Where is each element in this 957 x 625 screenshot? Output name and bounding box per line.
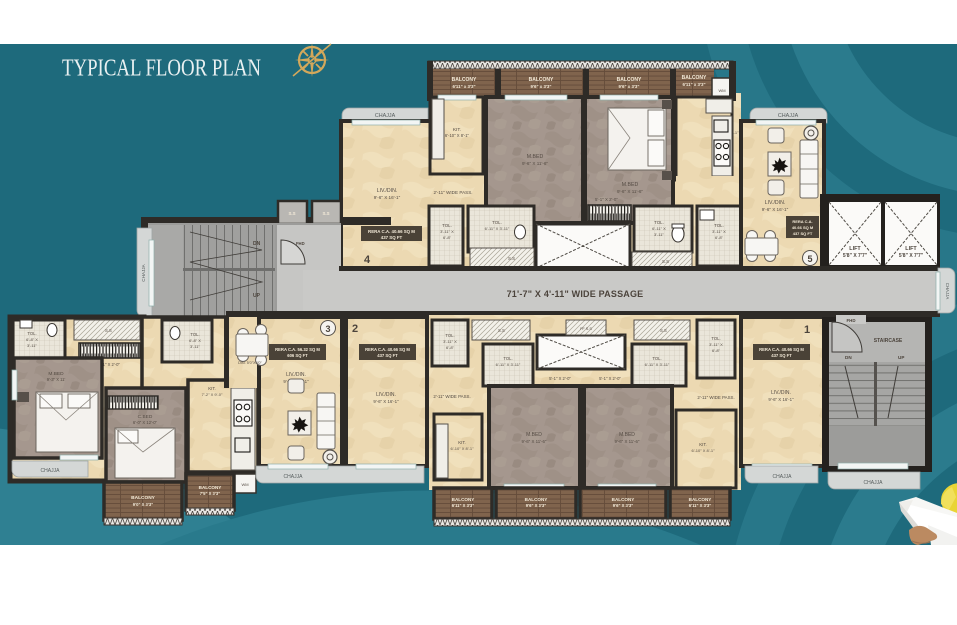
svg-text:6'11" X 3'3": 6'11" X 3'3" [689, 503, 712, 508]
svg-text:3'-11" X: 3'-11" X [712, 229, 726, 234]
svg-text:6'-11" X 3'-11": 6'-11" X 3'-11" [645, 362, 670, 367]
svg-text:CHAJJA: CHAJJA [945, 283, 950, 300]
svg-text:7'5" X 3'3": 7'5" X 3'3" [200, 491, 220, 496]
svg-text:RERA C.A. 40.66 SQ M: RERA C.A. 40.66 SQ M [368, 229, 415, 234]
svg-text:40.66 SQ M: 40.66 SQ M [792, 225, 814, 230]
svg-text:FHD: FHD [296, 241, 305, 246]
svg-text:BALCONY: BALCONY [525, 497, 548, 502]
svg-text:6'-11" X 3'-11": 6'-11" X 3'-11" [485, 226, 510, 231]
svg-text:TOL.: TOL. [442, 223, 452, 228]
svg-text:BALCONY: BALCONY [612, 497, 635, 502]
svg-text:RERA C.A.: RERA C.A. [792, 219, 812, 224]
svg-text:71'-7" X 4'-11" WIDE PASSAGE: 71'-7" X 4'-11" WIDE PASSAGE [507, 289, 644, 299]
svg-text:M.BED: M.BED [619, 432, 635, 438]
svg-text:BALCONY: BALCONY [682, 75, 707, 81]
svg-text:6'-8" X: 6'-8" X [26, 337, 38, 342]
svg-text:437 SQ FT: 437 SQ FT [381, 235, 403, 240]
svg-text:M.BED: M.BED [622, 182, 639, 188]
svg-text:5: 5 [807, 254, 812, 264]
svg-text:5'-1" X 2'-0": 5'-1" X 2'-0" [549, 376, 571, 381]
svg-text:LIFT: LIFT [905, 246, 917, 252]
svg-text:2: 2 [352, 323, 358, 335]
svg-text:BALCONY: BALCONY [452, 77, 477, 83]
svg-text:KIT.: KIT. [699, 442, 707, 447]
svg-text:LIV./DIN.: LIV./DIN. [286, 372, 306, 378]
svg-text:9'-6" X 11'-6": 9'-6" X 11'-6" [615, 439, 640, 444]
svg-text:RERA C.A. 40.66 SQ M: RERA C.A. 40.66 SQ M [365, 347, 410, 352]
svg-text:3'-11": 3'-11" [190, 344, 200, 349]
svg-text:1: 1 [804, 324, 810, 336]
svg-text:9'-3" X 11': 9'-3" X 11' [47, 377, 66, 382]
svg-text:9'0" X 3'3": 9'0" X 3'3" [133, 502, 153, 507]
svg-text:9'-6" X 16'-1": 9'-6" X 16'-1" [762, 207, 789, 212]
svg-text:LIV./DIN.: LIV./DIN. [771, 390, 791, 396]
svg-text:3'-11": 3'-11" [27, 343, 37, 348]
svg-text:TOL.: TOL. [492, 220, 502, 225]
svg-text:6'-8" X: 6'-8" X [189, 338, 201, 343]
svg-text:9'6" X 3'3": 9'6" X 3'3" [613, 503, 633, 508]
svg-text:CHAJJA: CHAJJA [864, 480, 884, 486]
svg-text:CHAJJA: CHAJJA [141, 263, 146, 281]
svg-text:6'-11" X 3'-11": 6'-11" X 3'-11" [496, 362, 521, 367]
svg-text:FHD: FHD [846, 318, 855, 323]
svg-text:RERA C.A. 56.32 SQ M: RERA C.A. 56.32 SQ M [275, 347, 320, 352]
svg-text:LIFT: LIFT [849, 246, 861, 252]
svg-text:STAIRCASE: STAIRCASE [874, 338, 903, 344]
svg-text:S.S: S.S [498, 328, 505, 333]
svg-text:BALCONY: BALCONY [617, 77, 642, 83]
svg-text:9'-6" X 16'-1": 9'-6" X 16'-1" [374, 195, 401, 200]
svg-text:UP: UP [898, 355, 904, 360]
svg-text:M.BED: M.BED [526, 432, 542, 438]
svg-text:606 SQ FT: 606 SQ FT [287, 353, 308, 358]
svg-text:KIT.: KIT. [458, 440, 466, 445]
svg-text:BALCONY: BALCONY [131, 495, 156, 501]
svg-text:LIV./DIN.: LIV./DIN. [376, 392, 396, 398]
svg-text:TOL.: TOL. [711, 336, 720, 341]
svg-text:CHAJJA: CHAJJA [41, 468, 61, 474]
svg-text:6'-11" X: 6'-11" X [652, 226, 666, 231]
svg-text:M.BED: M.BED [527, 154, 544, 160]
svg-text:2'-11" WIDE PASS.: 2'-11" WIDE PASS. [433, 394, 470, 399]
svg-text:4: 4 [364, 254, 371, 266]
svg-text:TYPICAL FLOOR PLAN: TYPICAL FLOOR PLAN [62, 56, 261, 82]
svg-text:3'-11" X: 3'-11" X [443, 339, 457, 344]
svg-text:TOL.: TOL. [445, 333, 454, 338]
svg-text:TOL.: TOL. [27, 331, 36, 336]
svg-text:S.S: S.S [105, 328, 112, 333]
svg-text:BALCONY: BALCONY [452, 497, 475, 502]
svg-text:UP: UP [253, 293, 261, 299]
svg-text:S.S: S.S [322, 211, 329, 216]
svg-text:6'-0" X 12'-0": 6'-0" X 12'-0" [133, 420, 158, 425]
svg-text:FF S.S: FF S.S [580, 327, 592, 331]
svg-text:TOL.: TOL. [714, 223, 724, 228]
svg-text:6'-10" X 8'-1": 6'-10" X 8'-1" [450, 446, 474, 451]
svg-text:TOL.: TOL. [654, 220, 664, 225]
svg-text:DN: DN [845, 355, 852, 360]
svg-text:6'11" X 3'3": 6'11" X 3'3" [452, 503, 475, 508]
svg-text:437 SQ FT: 437 SQ FT [377, 353, 398, 358]
svg-text:9'-6" X 11'-6": 9'-6" X 11'-6" [522, 161, 548, 166]
svg-text:6'-8": 6'-8" [446, 345, 455, 350]
svg-text:5'-1" X 2'-0": 5'-1" X 2'-0" [599, 376, 621, 381]
svg-text:5'8" X 7'7": 5'8" X 7'7" [899, 253, 924, 259]
svg-text:S.S: S.S [508, 256, 515, 261]
svg-text:WM: WM [241, 482, 248, 487]
svg-text:BALCONY: BALCONY [689, 497, 712, 502]
svg-text:9'-6" X 16'-1": 9'-6" X 16'-1" [768, 397, 794, 402]
svg-text:6'-10" X 8'-1": 6'-10" X 8'-1" [691, 448, 715, 453]
svg-text:9'-6" X 11'-6": 9'-6" X 11'-6" [522, 439, 547, 444]
svg-text:2'-11" WIDE PASS.: 2'-11" WIDE PASS. [697, 395, 734, 400]
svg-text:5'8" X 7'7": 5'8" X 7'7" [843, 253, 868, 259]
svg-text:5'-1" X 2'-0": 5'-1" X 2'-0" [595, 197, 618, 202]
svg-text:6'11" x 3'3": 6'11" x 3'3" [452, 84, 475, 89]
svg-text:DIN. 5'0"X4'0": DIN. 5'0"X4'0" [238, 361, 262, 365]
svg-text:6'11" x 3'3": 6'11" x 3'3" [682, 82, 705, 87]
svg-text:9'6" X 3'3": 9'6" X 3'3" [526, 503, 546, 508]
svg-text:CHAJJA: CHAJJA [375, 113, 396, 119]
svg-text:DN: DN [253, 241, 261, 247]
svg-text:6'-8": 6'-8" [712, 348, 721, 353]
svg-text:LIV./DIN.: LIV./DIN. [377, 188, 398, 194]
svg-text:WM: WM [718, 88, 725, 93]
svg-text:BALCONY: BALCONY [199, 485, 222, 490]
svg-text:3'-11" X: 3'-11" X [709, 342, 723, 347]
svg-text:TOL.: TOL. [652, 356, 661, 361]
svg-text:3'-11" X: 3'-11" X [440, 229, 454, 234]
svg-text:CHAJJA: CHAJJA [284, 474, 304, 480]
svg-text:S.S: S.S [660, 328, 667, 333]
svg-text:CHAJJA: CHAJJA [778, 113, 799, 119]
svg-text:CHAJJA: CHAJJA [773, 474, 793, 480]
svg-text:9'6" x 3'3": 9'6" x 3'3" [531, 84, 552, 89]
svg-text:2'-11" WIDE PASS.: 2'-11" WIDE PASS. [433, 190, 472, 195]
svg-text:9'-6" X 16'-1": 9'-6" X 16'-1" [373, 399, 399, 404]
svg-text:KIT.: KIT. [208, 386, 216, 391]
svg-text:9'-6" X 11'-6": 9'-6" X 11'-6" [617, 189, 643, 194]
svg-text:RERA C.A. 40.66 SQ M: RERA C.A. 40.66 SQ M [759, 347, 804, 352]
svg-text:6'-8": 6'-8" [443, 235, 452, 240]
svg-text:6'-8": 6'-8" [715, 235, 724, 240]
svg-text:437 SQ FT: 437 SQ FT [771, 353, 792, 358]
svg-text:3'-11": 3'-11" [654, 232, 664, 237]
svg-text:S.S: S.S [288, 211, 295, 216]
svg-text:437 SQ FT: 437 SQ FT [793, 231, 813, 236]
svg-text:S.S: S.S [662, 259, 669, 264]
svg-text:9'6" x 3'3": 9'6" x 3'3" [619, 84, 640, 89]
svg-text:TOL.: TOL. [190, 332, 199, 337]
svg-text:3: 3 [325, 324, 330, 334]
svg-text:6'-10" X 8'-1": 6'-10" X 8'-1" [445, 133, 470, 138]
svg-text:7'-2" X 9'-0": 7'-2" X 9'-0" [202, 392, 223, 397]
svg-text:BALCONY: BALCONY [529, 77, 554, 83]
svg-text:LIV./DIN.: LIV./DIN. [765, 200, 786, 206]
svg-text:TOL.: TOL. [503, 356, 512, 361]
